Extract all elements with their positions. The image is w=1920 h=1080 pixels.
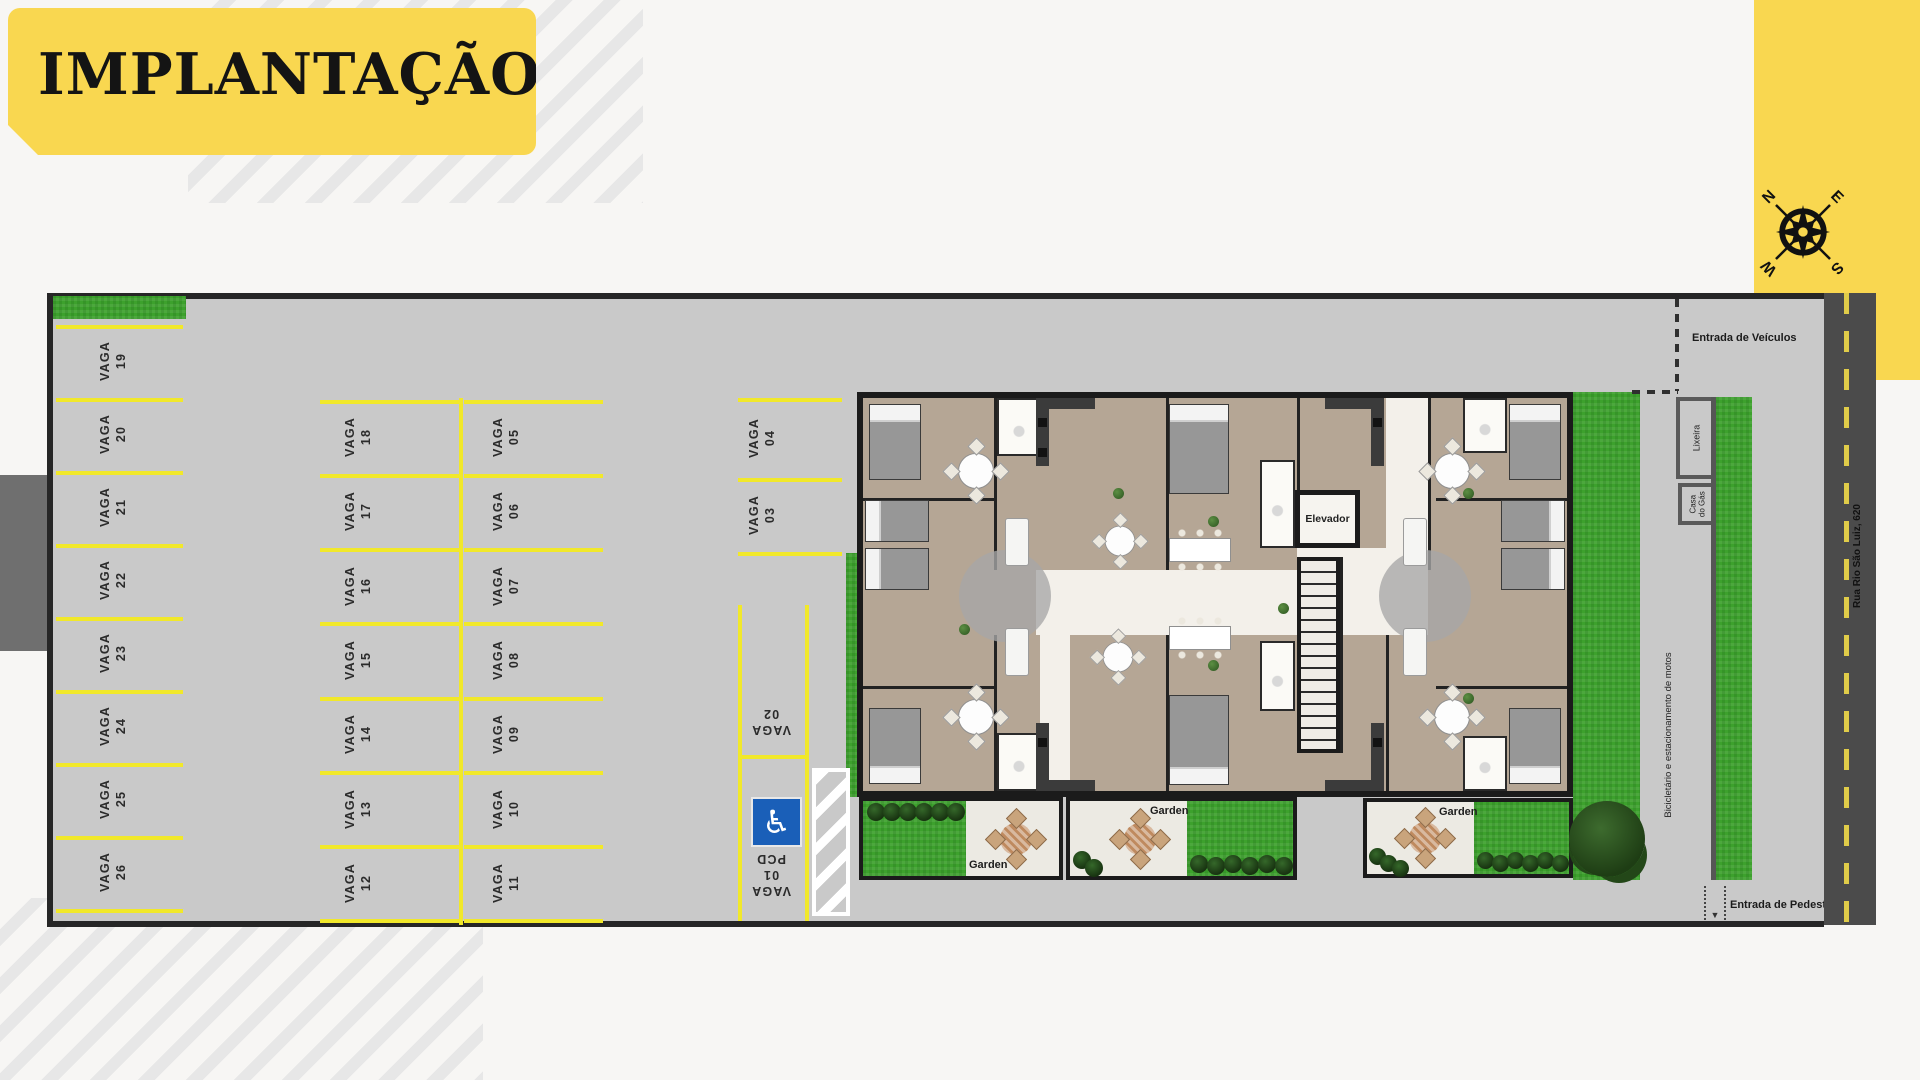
bed <box>869 708 921 784</box>
trash-label: Lixeira <box>1691 425 1701 452</box>
parking-line <box>464 845 603 849</box>
wheelchair-glyph: ♿ <box>762 803 791 841</box>
garden-label: Garden <box>1439 806 1478 818</box>
appliance <box>1038 418 1047 427</box>
garden-bush-icon <box>1207 857 1225 875</box>
sofa <box>1403 518 1427 566</box>
parking-line <box>464 771 603 775</box>
garden-label: Garden <box>1150 805 1189 817</box>
parking-space-label: VAGA 13 <box>340 771 376 847</box>
parking-space-label: VAGA 24 <box>95 688 131 764</box>
tree-icon <box>1569 801 1645 877</box>
parking-space-label: VAGA 02 <box>733 695 809 749</box>
wall <box>1340 557 1343 753</box>
building-floor-plan: Elevador <box>857 392 1573 797</box>
garden-bush-icon <box>1392 860 1409 877</box>
dining-table-rect <box>1169 538 1231 562</box>
kitchen-counter <box>1325 780 1371 791</box>
garden-bush-icon <box>947 803 965 821</box>
plant-icon <box>1278 603 1289 614</box>
bed <box>865 548 929 590</box>
parking-line <box>464 474 603 478</box>
parking-space-label: VAGA 22 <box>95 542 131 618</box>
wall <box>1297 398 1300 490</box>
parking-space-label: VAGA 17 <box>340 473 376 549</box>
dining-table-rect <box>1169 626 1231 650</box>
dining-table-round <box>945 686 1007 748</box>
parking-space-label: VAGA 12 <box>340 845 376 921</box>
parking-space-label: VAGA 19 <box>95 323 131 399</box>
parking-line <box>738 755 809 759</box>
bed <box>1501 548 1565 590</box>
parking-space-label: VAGA 23 <box>95 615 131 691</box>
parking-space-label: VAGA 18 <box>340 399 376 475</box>
plant-icon <box>1208 660 1219 671</box>
dining-table-round <box>1092 631 1145 684</box>
kitchen-counter <box>1049 780 1095 791</box>
kitchen-counter <box>1371 723 1384 791</box>
parking-space-label: VAGA 04 <box>744 400 780 476</box>
parking-space-label: VAGA 16 <box>340 548 376 624</box>
kitchen-counter <box>1036 723 1049 791</box>
appliance <box>1038 448 1047 457</box>
garden-table-set <box>1112 811 1168 867</box>
plant-icon <box>1113 488 1124 499</box>
sofa <box>1403 628 1427 676</box>
kitchen-counter <box>1049 398 1095 409</box>
garden-table-set <box>1397 810 1453 866</box>
vehicle-path-dashed <box>1675 299 1679 391</box>
kitchen-counter <box>1371 398 1384 466</box>
parking-space-label: VAGA 06 <box>488 473 524 549</box>
parking-divider-line <box>459 398 463 925</box>
plant-icon <box>1208 516 1219 527</box>
staircase <box>1297 557 1340 753</box>
wall <box>1386 635 1389 791</box>
garden-bush-icon <box>1224 855 1242 873</box>
bed <box>869 404 921 480</box>
street-road <box>1824 293 1876 925</box>
street-name-label: Rua Rio São Luiz, 620 <box>1852 476 1868 636</box>
parking-space-label: VAGA 26 <box>95 834 131 910</box>
parking-space-label: VAGA 03 <box>744 477 780 553</box>
bed <box>865 500 929 542</box>
dining-table-round <box>1421 686 1483 748</box>
gas-house-label: Casa do Gás <box>1688 491 1706 517</box>
garden-box: Garden <box>1363 798 1573 878</box>
crosswalk-hatch <box>812 768 850 916</box>
bathroom <box>1260 641 1295 711</box>
sofa <box>1005 628 1029 676</box>
parking-space-label: VAGA 25 <box>95 761 131 837</box>
garden-bush-icon <box>1258 855 1276 873</box>
parking-space-label: VAGA 09 <box>488 696 524 772</box>
garden-box: Garden <box>859 797 1063 880</box>
dining-table-round <box>945 440 1007 502</box>
parking-line <box>464 622 603 626</box>
parking-line <box>464 400 603 404</box>
parking-space-label: VAGA 05 <box>488 399 524 475</box>
sofa <box>1005 518 1029 566</box>
garden-label: Garden <box>969 859 1008 871</box>
garden-bush-icon <box>1085 859 1103 877</box>
parking-space-label: VAGA 01 PCD <box>733 848 809 902</box>
parking-space-label: VAGA 08 <box>488 622 524 698</box>
bed <box>1509 404 1561 480</box>
bathroom <box>1260 460 1295 548</box>
appliance <box>1373 738 1382 747</box>
parking-space-label: VAGA 10 <box>488 771 524 847</box>
appliance <box>1373 418 1382 427</box>
elevator-room: Elevador <box>1295 490 1360 548</box>
garden-bush-icon <box>1552 855 1569 872</box>
vehicle-path-dashed <box>1632 390 1678 394</box>
parking-line <box>464 548 603 552</box>
parking-line <box>464 697 603 701</box>
parking-space-label: VAGA 15 <box>340 622 376 698</box>
plant-icon <box>1463 693 1474 704</box>
pedestrian-path-dotted: ▼ <box>1704 886 1726 920</box>
vehicle-entrance-label: Entrada de Veículos <box>1692 332 1797 344</box>
handicap-icon: ♿ <box>751 797 802 847</box>
bed <box>1169 695 1229 785</box>
garden-bush-icon <box>1190 855 1208 873</box>
bed <box>1509 708 1561 784</box>
elevator-label: Elevador <box>1305 513 1349 525</box>
garden-box: Garden <box>1066 797 1297 880</box>
plant-icon <box>1463 488 1474 499</box>
bed <box>1169 404 1229 494</box>
bed <box>1501 500 1565 542</box>
hedge-strip <box>1716 397 1752 880</box>
parking-space-label: VAGA 07 <box>488 548 524 624</box>
site-plan-page: IMPLANTAÇÃO N E W S VAGA 19VAGA 20VAGA 2… <box>0 0 1920 1080</box>
kitchen-counter <box>1325 398 1371 409</box>
parking-space-label: VAGA 14 <box>340 696 376 772</box>
parking-space-label: VAGA 20 <box>95 396 131 472</box>
bike-parking-label: Bicicletário e estacionamento de motos <box>1663 590 1679 880</box>
parking-line <box>464 919 603 923</box>
garden-bush-icon <box>1275 857 1293 875</box>
garden-bush-icon <box>1241 857 1259 875</box>
parking-space-label: VAGA 21 <box>95 469 131 545</box>
plant-icon <box>959 624 970 635</box>
dining-table-round <box>1094 515 1147 568</box>
parking-space-label: VAGA 11 <box>488 845 524 921</box>
road-center-line <box>1844 293 1849 925</box>
appliance <box>1038 738 1047 747</box>
